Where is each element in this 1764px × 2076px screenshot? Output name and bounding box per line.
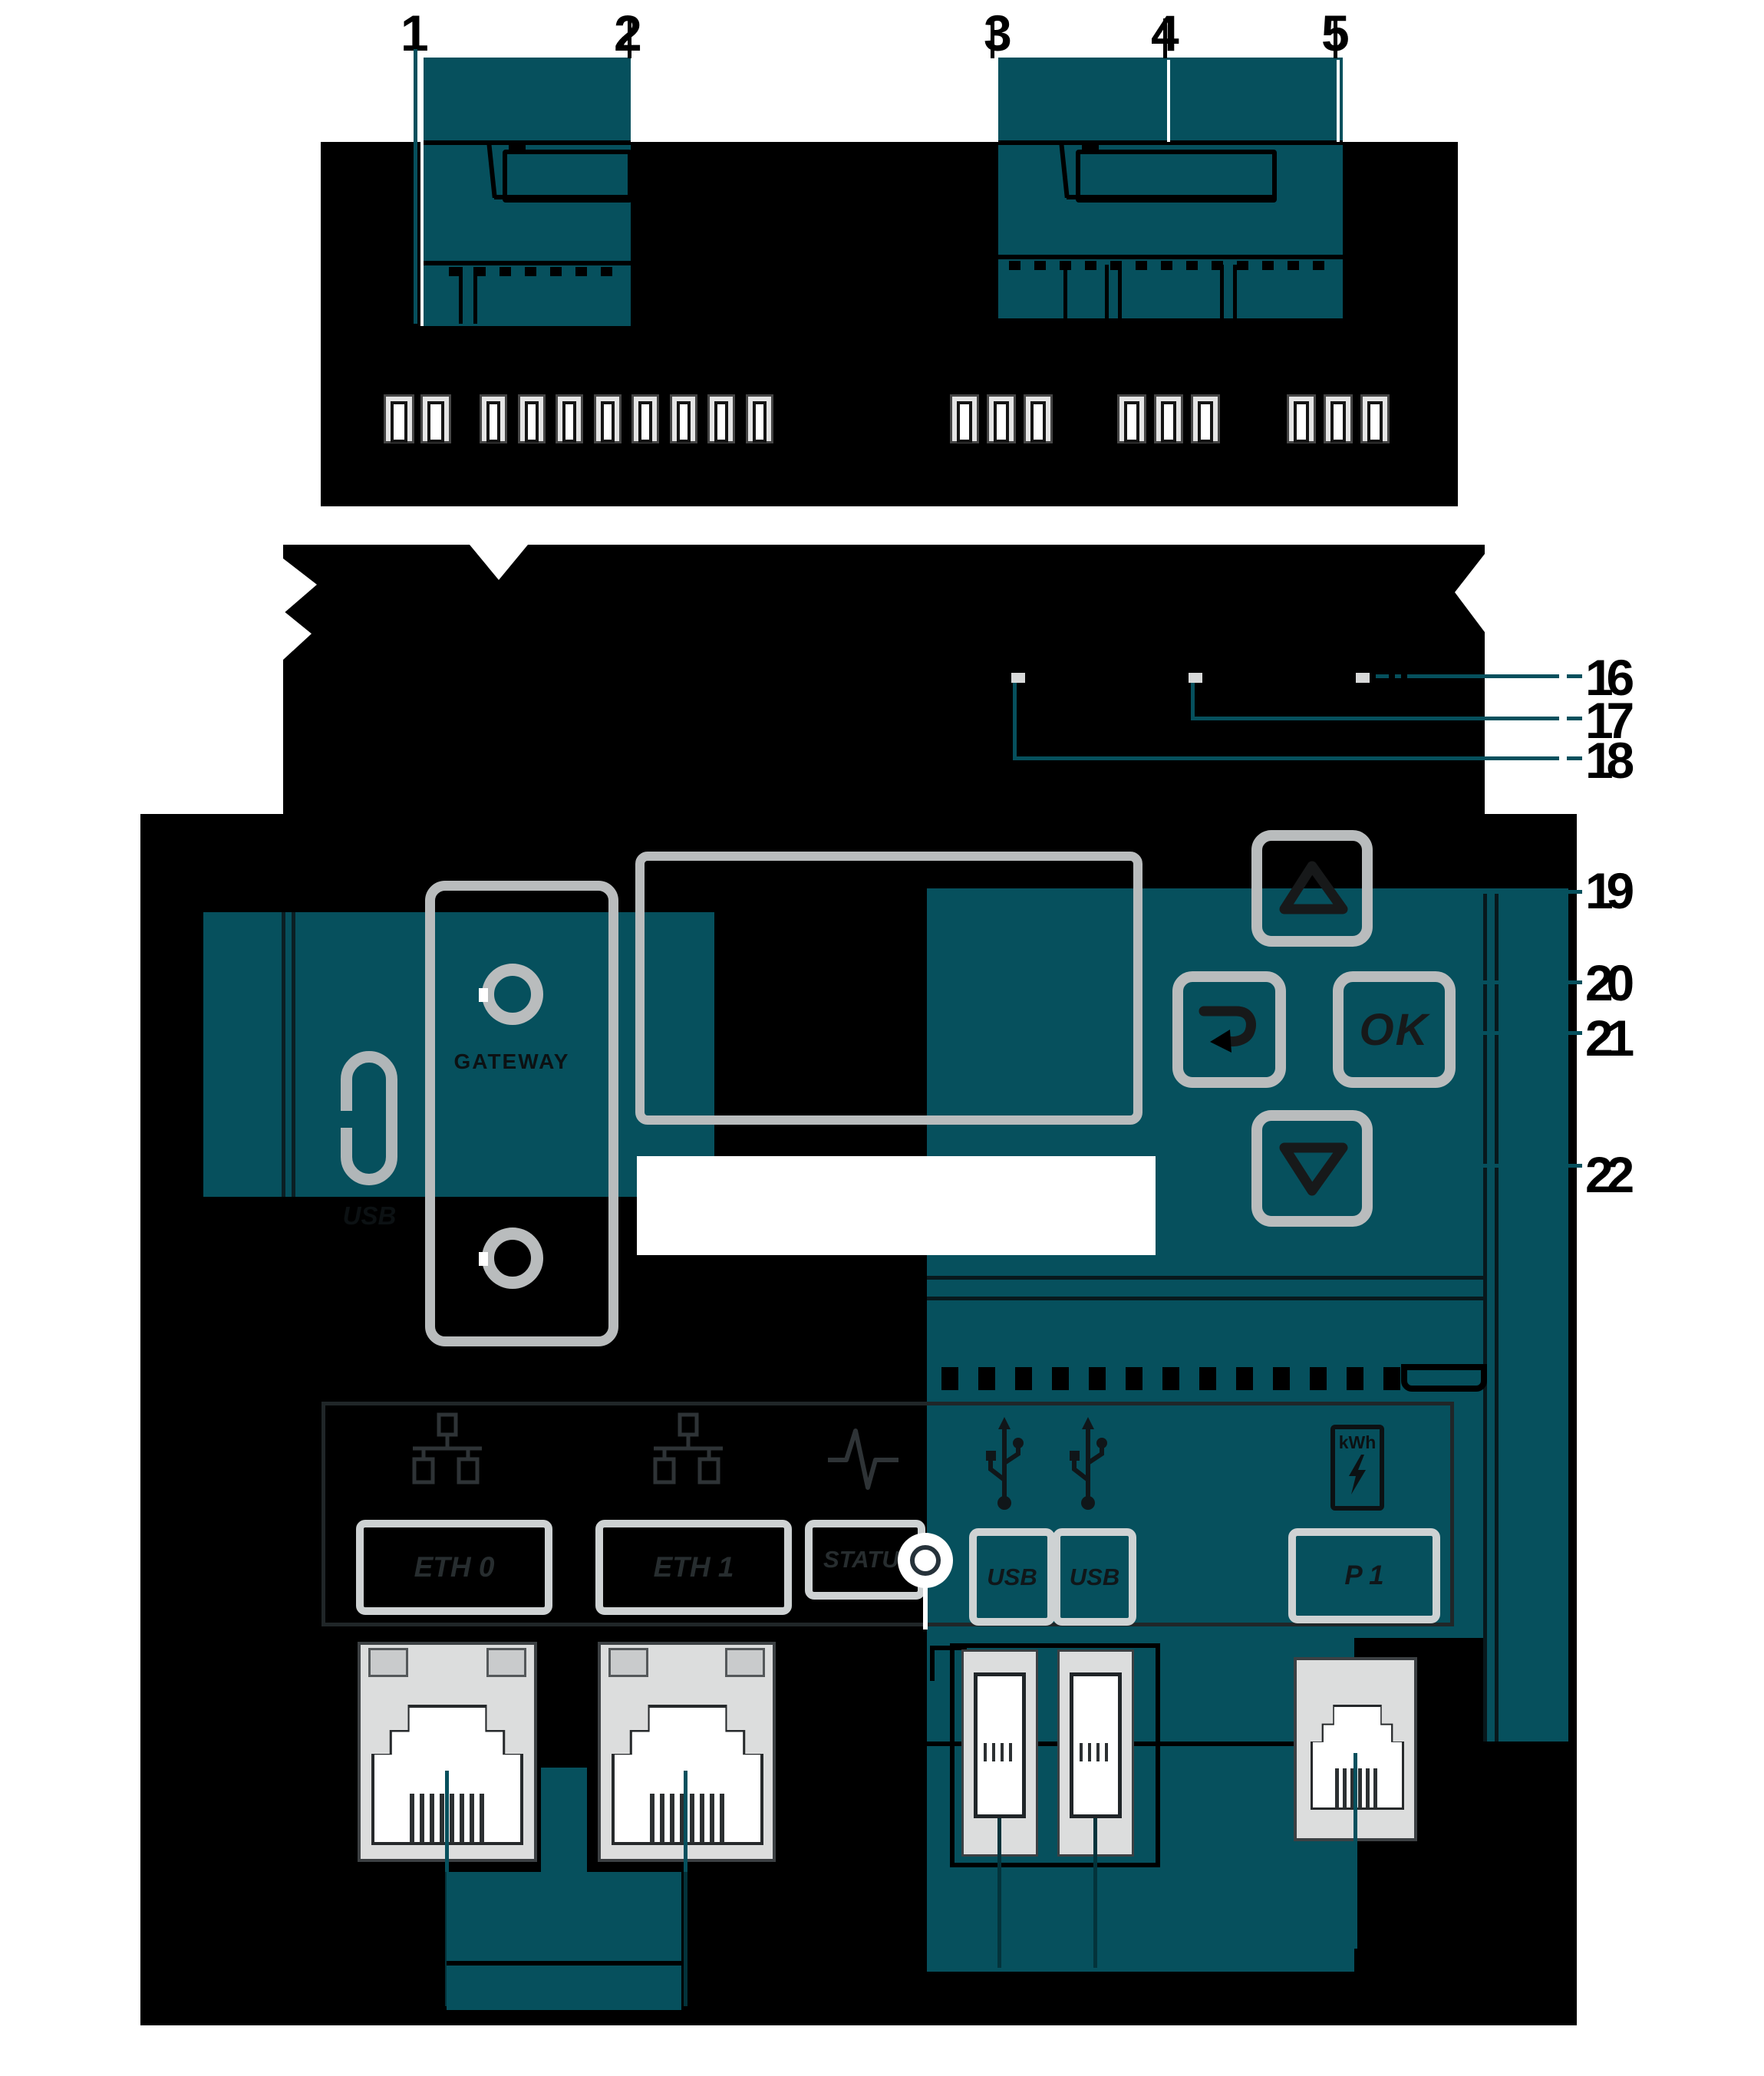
p1-label-box: P 1	[1288, 1528, 1440, 1623]
status-led-inner	[910, 1545, 941, 1576]
usb-port-2-slot	[1070, 1672, 1122, 1818]
callout-19: 19	[1585, 865, 1627, 916]
terminal-pin	[1287, 394, 1316, 443]
side-usb-port-notch	[341, 1111, 352, 1128]
p1-label: P 1	[1344, 1560, 1383, 1591]
leader-line-5	[1334, 18, 1337, 58]
terminal-pin	[1360, 394, 1390, 443]
eth0-latch-ear-right	[486, 1648, 526, 1677]
leader-line-1	[414, 49, 417, 324]
terminal-pin	[950, 394, 979, 443]
usb-trident-icon	[983, 1415, 1026, 1515]
terminal-pin	[746, 394, 773, 443]
terminal-pin	[384, 394, 414, 443]
leader-21	[1459, 1031, 1559, 1035]
p1-wire	[1353, 1753, 1357, 1949]
terminal-pin	[1324, 394, 1353, 443]
callout-18: 18	[1585, 735, 1627, 786]
terminal-pin	[631, 394, 659, 443]
network-icon	[648, 1412, 727, 1485]
led-1	[1011, 673, 1025, 683]
terminal-pin	[987, 394, 1016, 443]
side-edge-line-2	[1495, 890, 1499, 1742]
leader-17	[1191, 683, 1195, 719]
leader-22	[1376, 1164, 1559, 1168]
terminal-pin	[480, 394, 507, 443]
device-upper-background	[283, 545, 1485, 836]
callout-2: 2	[614, 8, 635, 58]
usb-a-label: USB	[987, 1564, 1037, 1591]
usb-b-label-box: USB	[1053, 1528, 1136, 1626]
callout-4: 4	[1151, 8, 1172, 58]
terminal-pin	[594, 394, 622, 443]
triangle-up-icon	[1275, 860, 1349, 917]
callout-20: 20	[1585, 957, 1627, 1008]
screw-hole-top	[482, 964, 543, 1025]
connector-left-outline	[424, 140, 631, 145]
eth1-wire	[684, 1771, 687, 1872]
callout-1: 1	[401, 8, 421, 58]
display	[635, 852, 1142, 1125]
eth0-label-box: ETH 0	[356, 1520, 552, 1615]
din-comb-endcap	[1401, 1364, 1487, 1392]
eth1-label-box: ETH 1	[595, 1520, 792, 1615]
leader-line-3	[991, 18, 994, 58]
side-edge-line-1	[1483, 890, 1487, 1742]
led-2	[1189, 673, 1202, 683]
eth0-latch-ear-left	[368, 1648, 408, 1677]
leader-gap-4	[1167, 60, 1170, 142]
kwh-icon-text: kWh	[1335, 1432, 1380, 1453]
din-stub	[541, 1768, 587, 1872]
break-mark-right	[1455, 554, 1485, 632]
terminal-pin	[556, 394, 583, 443]
pulse-icon	[825, 1423, 902, 1494]
screw-hole-top-notch	[479, 988, 488, 1002]
usb-trident-icon	[1067, 1415, 1110, 1515]
leader-gap-1	[420, 104, 424, 326]
connector-left-lever-base	[494, 195, 629, 199]
leader-line-2	[628, 18, 631, 58]
leader-gap-5	[1337, 60, 1340, 142]
back-button	[1172, 971, 1286, 1088]
leader-19	[1376, 890, 1559, 894]
connector-left-midline	[424, 261, 631, 265]
status-led-stem	[923, 1580, 928, 1629]
terminal-pin	[1117, 394, 1146, 443]
panel-bottom-line-2	[927, 1297, 1485, 1300]
terminal-pin	[1154, 394, 1183, 443]
screw-hole-bottom	[482, 1227, 543, 1289]
usb-b-label: USB	[1070, 1564, 1119, 1591]
leader-line-4	[1163, 18, 1167, 58]
leader-16	[1376, 674, 1389, 678]
terminal-pin	[670, 394, 697, 443]
lower-teal-block	[447, 1872, 681, 2010]
connector-right-midline	[998, 255, 1343, 259]
hardware-diagram: { "meta": { "title": "Gateway device har…	[0, 0, 1764, 2076]
leader-gap-2	[635, 60, 638, 142]
usb-port-1-slot	[974, 1672, 1026, 1818]
lower-teal-block-divider	[447, 1961, 681, 1966]
return-arrow-icon	[1196, 999, 1262, 1060]
led-3	[1356, 673, 1370, 683]
triangle-down-icon	[1275, 1140, 1349, 1197]
band-edge-line-2	[292, 912, 295, 1197]
connector-right-outline	[998, 140, 1343, 145]
eth0-label: ETH 0	[414, 1551, 495, 1583]
lightning-icon	[1335, 1453, 1380, 1496]
terminal-pin	[1024, 394, 1053, 443]
band-edge-line-1	[282, 912, 285, 1197]
break-mark-top	[470, 545, 528, 580]
up-button	[1251, 830, 1373, 947]
side-usb-label: USB	[325, 1201, 414, 1231]
break-mark-left-2	[283, 611, 312, 660]
break-mark-left	[283, 559, 317, 614]
eth1-latch-ear-left	[608, 1648, 648, 1677]
terminal-pin	[420, 394, 451, 443]
connector-right-lever-step	[1082, 140, 1099, 151]
ok-button: OK	[1333, 971, 1456, 1088]
network-icon	[407, 1412, 486, 1485]
terminal-pin	[707, 394, 735, 443]
leader-gap-3	[993, 60, 996, 142]
eth1-latch-ear-right	[725, 1648, 765, 1677]
kwh-meter-icon: kWh	[1330, 1425, 1384, 1511]
callout-5: 5	[1321, 8, 1342, 58]
eth0-wire	[445, 1771, 449, 1872]
leader-18	[1013, 683, 1017, 760]
connector-right-lever-base	[1067, 195, 1275, 199]
panel-bottom-line-1	[927, 1276, 1485, 1280]
callout-21: 21	[1585, 1013, 1627, 1063]
eth1-label: ETH 1	[654, 1551, 734, 1583]
down-button	[1251, 1110, 1373, 1227]
ok-button-label: OK	[1360, 1004, 1429, 1056]
callout-22: 22	[1585, 1149, 1627, 1200]
front-label-area	[637, 1156, 1156, 1255]
gateway-label: GATEWAY	[425, 1050, 598, 1074]
usb-port-1-wire	[997, 1818, 1001, 1968]
terminal-pin	[1191, 394, 1220, 443]
usb-a-label-box: USB	[969, 1528, 1055, 1626]
usb-port-2-wire	[1093, 1818, 1097, 1968]
screw-hole-bottom-notch	[479, 1252, 488, 1266]
terminal-pin	[518, 394, 546, 443]
connector-left-lever-step	[509, 140, 526, 151]
